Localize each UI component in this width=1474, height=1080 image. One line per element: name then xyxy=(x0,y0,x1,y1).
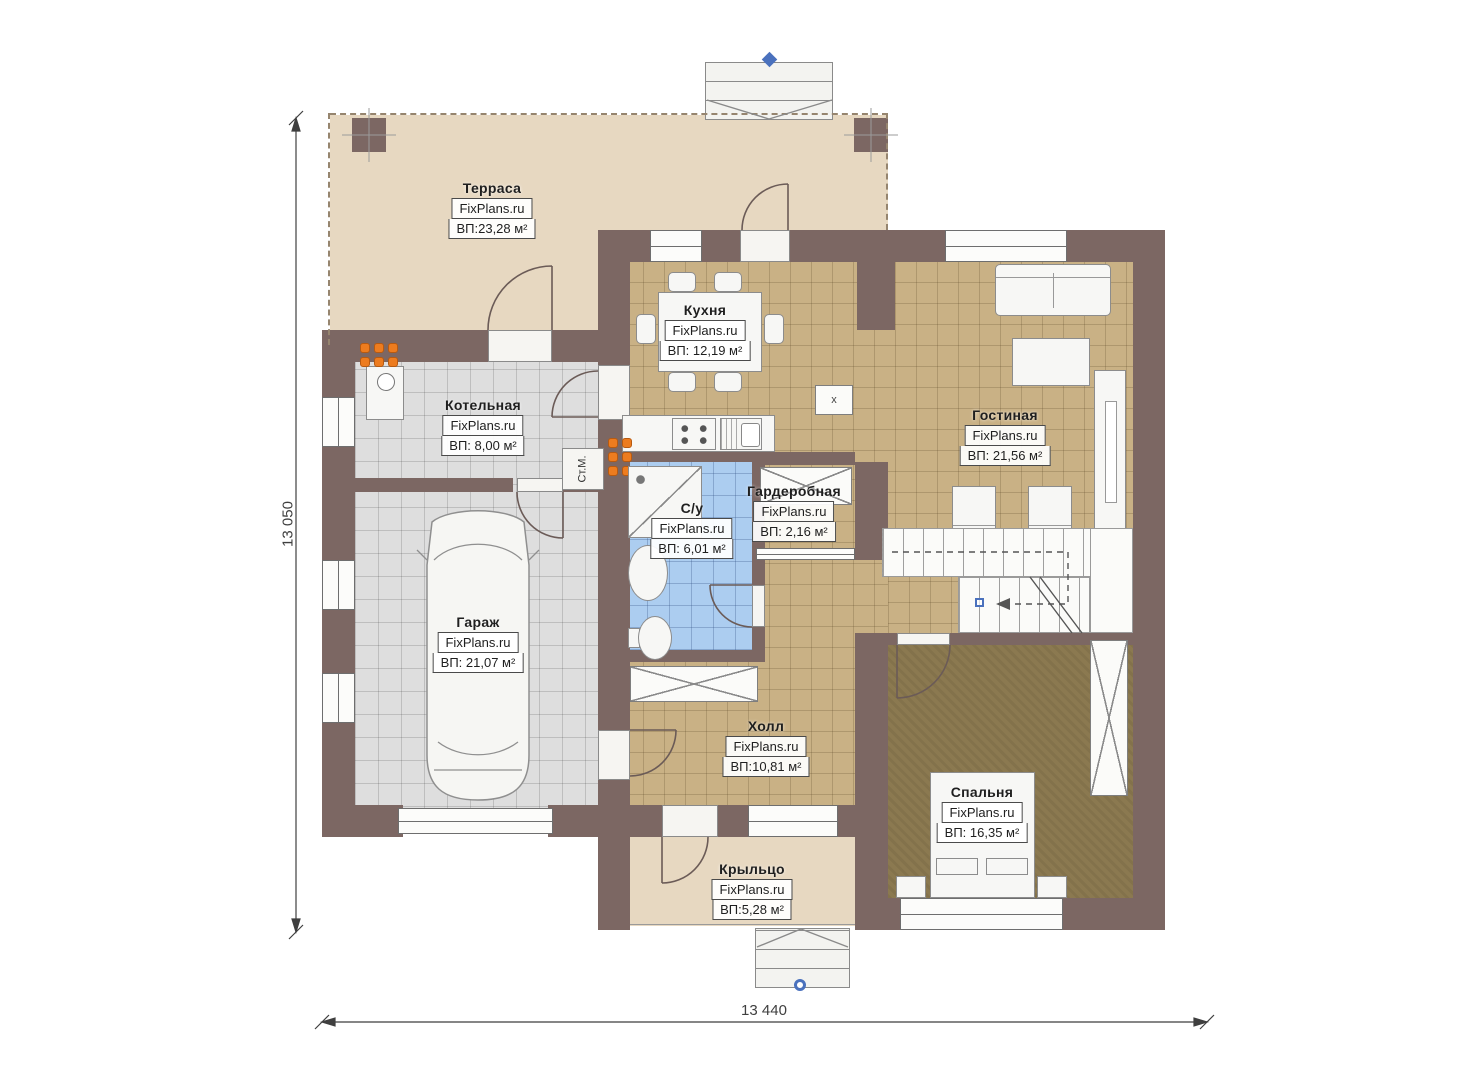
door-panel-hall-bedroom xyxy=(897,633,950,645)
room-area: ВП: 21,07 м² xyxy=(433,653,524,673)
wall-left-corner xyxy=(322,805,355,837)
sink-basin xyxy=(741,423,760,447)
radiator-dot xyxy=(608,452,618,462)
room-name: Котельная xyxy=(445,397,521,413)
room-label-boiler: Котельная FixPlans.ru ВП: 8,00 м² xyxy=(441,397,524,456)
stairs-landing xyxy=(1090,528,1133,633)
dressing-sliding-door xyxy=(756,548,855,560)
porch-edge-line xyxy=(630,924,855,925)
wall-kitchen-bathroom xyxy=(622,452,768,462)
brand-label: FixPlans.ru xyxy=(442,415,523,436)
hall-closet xyxy=(630,666,758,702)
radiator-dot xyxy=(388,357,398,367)
room-label-bedroom: Спальня FixPlans.ru ВП: 16,35 м² xyxy=(937,784,1028,843)
wall-porch-top-3 xyxy=(838,805,855,837)
room-name: Спальня xyxy=(951,784,1014,800)
window-bedroom-bottom xyxy=(900,898,1063,930)
toilet-bowl xyxy=(638,616,672,660)
room-label-terrace: Терраса FixPlans.ru ВП:23,28 м² xyxy=(448,180,535,239)
room-label-kitchen: Кухня FixPlans.ru ВП: 12,19 м² xyxy=(660,302,751,361)
window-left-3 xyxy=(322,673,355,723)
wall-bedroom-left xyxy=(855,633,888,898)
stairs-marker xyxy=(975,598,984,607)
terrace-post-left xyxy=(352,118,386,152)
room-label-hall: Холл FixPlans.ru ВП:10,81 м² xyxy=(722,718,809,777)
window-living-top xyxy=(945,230,1067,262)
room-name: Терраса xyxy=(463,180,521,196)
boiler-dial xyxy=(377,373,395,391)
brand-label: FixPlans.ru xyxy=(651,518,732,539)
window-left-1 xyxy=(322,397,355,447)
room-area: ВП: 8,00 м² xyxy=(441,436,524,456)
sofa xyxy=(995,264,1111,316)
wall-wing-top-2 xyxy=(552,330,630,362)
stove xyxy=(672,418,716,450)
door-panel-bathroom xyxy=(752,585,765,627)
room-name: Крыльцо xyxy=(719,861,785,877)
wall-column-kitchen-living xyxy=(857,262,895,330)
radiator-dot xyxy=(374,343,384,353)
radiator-dot xyxy=(608,438,618,448)
dining-chair xyxy=(714,272,742,292)
stairs-upper-flight xyxy=(882,528,1105,577)
window-kitchen-top xyxy=(650,230,702,262)
garage-door xyxy=(398,808,553,834)
wall-right xyxy=(1133,262,1165,930)
toilet xyxy=(628,608,674,666)
room-area: ВП: 21,56 м² xyxy=(960,446,1051,466)
room-name: С/у xyxy=(681,500,704,516)
room-name: Гостиная xyxy=(972,407,1038,423)
room-name: Гараж xyxy=(456,614,499,630)
wall-spine-3 xyxy=(598,780,630,805)
radiator-dot xyxy=(622,438,632,448)
room-name: Кухня xyxy=(684,302,726,318)
door-panel-hall-porch xyxy=(662,805,718,837)
radiator-dot xyxy=(622,452,632,462)
radiator-dot xyxy=(608,466,618,476)
radiator-dot xyxy=(360,343,370,353)
wall-wing-top-1 xyxy=(322,330,488,362)
door-panel-boiler-garage xyxy=(517,478,563,492)
wall-garage-bottom-1 xyxy=(355,805,403,837)
porch-entry-marker xyxy=(794,979,806,991)
wall-porch-top-2 xyxy=(718,805,748,837)
room-area: ВП: 16,35 м² xyxy=(937,823,1028,843)
brand-label: FixPlans.ru xyxy=(964,425,1045,446)
washing-machine-label: Ст.М. xyxy=(577,455,589,482)
brand-label: FixPlans.ru xyxy=(941,802,1022,823)
radiator-dot xyxy=(360,357,370,367)
door-panel-terrace-kitchen xyxy=(740,230,790,262)
brand-label: FixPlans.ru xyxy=(451,198,532,219)
kitchen-sink xyxy=(720,418,762,450)
nightstand xyxy=(1037,876,1067,898)
tv-unit xyxy=(1094,370,1126,530)
radiator-dot xyxy=(388,343,398,353)
room-area: ВП: 6,01 м² xyxy=(650,539,733,559)
dimension-bottom: 13 440 xyxy=(741,1002,787,1019)
brand-label: FixPlans.ru xyxy=(753,501,834,522)
wall-porch-left xyxy=(598,805,630,930)
window-porch xyxy=(748,805,838,837)
tv-panel xyxy=(1105,401,1117,503)
room-name: Холл xyxy=(748,718,784,734)
brand-label: FixPlans.ru xyxy=(437,632,518,653)
room-name: Гардеробная xyxy=(747,483,841,499)
wall-dressing-top xyxy=(765,452,855,465)
wall-porch-top-1 xyxy=(630,805,662,837)
nightstand xyxy=(896,876,926,898)
boiler-unit xyxy=(366,366,404,420)
room-label-porch: Крыльцо FixPlans.ru ВП:5,28 м² xyxy=(711,861,792,920)
bedroom-wardrobe xyxy=(1090,640,1128,796)
wall-boiler-garage-1 xyxy=(355,478,513,492)
wall-bedroom-top-1 xyxy=(888,633,897,645)
brand-label: FixPlans.ru xyxy=(664,320,745,341)
vent-label: х xyxy=(831,394,837,406)
terrace-edge-right xyxy=(886,113,888,230)
dining-chair xyxy=(764,314,784,344)
dining-chair xyxy=(668,372,696,392)
room-area: ВП: 12,19 м² xyxy=(660,341,751,361)
floor-plan-canvas: х Ст.М. xyxy=(0,0,1474,1080)
room-label-living: Гостиная FixPlans.ru ВП: 21,56 м² xyxy=(960,407,1051,466)
bed-pillow xyxy=(986,858,1028,875)
terrace-post-right xyxy=(854,118,888,152)
terrace-entry-steps xyxy=(705,62,833,120)
door-panel-terrace-boiler xyxy=(488,330,552,362)
room-area: ВП:23,28 м² xyxy=(448,219,535,239)
dimension-left: 13 050 xyxy=(280,501,297,547)
dining-chair xyxy=(668,272,696,292)
bed-pillow xyxy=(936,858,978,875)
door-panel-spine-hall xyxy=(598,730,630,780)
room-area: ВП:10,81 м² xyxy=(722,757,809,777)
terrace-edge-left xyxy=(328,113,330,345)
terrace-floor xyxy=(330,115,888,232)
washing-machine: Ст.М. xyxy=(562,448,604,490)
coffee-table xyxy=(1012,338,1090,386)
wall-garage-bottom-2 xyxy=(548,805,598,837)
brand-label: FixPlans.ru xyxy=(711,879,792,900)
radiator-boiler xyxy=(360,343,398,367)
terrace-floor-left xyxy=(330,232,620,345)
terrace-edge-top xyxy=(330,113,888,115)
room-label-bathroom: С/у FixPlans.ru ВП: 6,01 м² xyxy=(650,500,733,559)
dining-chair xyxy=(714,372,742,392)
dining-chair xyxy=(636,314,656,344)
room-area: ВП: 2,16 м² xyxy=(752,522,835,542)
vent-shaft: х xyxy=(815,385,853,415)
radiator-dot xyxy=(374,357,384,367)
room-label-dressing: Гардеробная FixPlans.ru ВП: 2,16 м² xyxy=(747,483,841,542)
door-panel-kitchen-boiler xyxy=(598,365,630,420)
room-area: ВП:5,28 м² xyxy=(712,900,792,920)
window-left-2 xyxy=(322,560,355,610)
brand-label: FixPlans.ru xyxy=(725,736,806,757)
room-label-garage: Гараж FixPlans.ru ВП: 21,07 м² xyxy=(433,614,524,673)
